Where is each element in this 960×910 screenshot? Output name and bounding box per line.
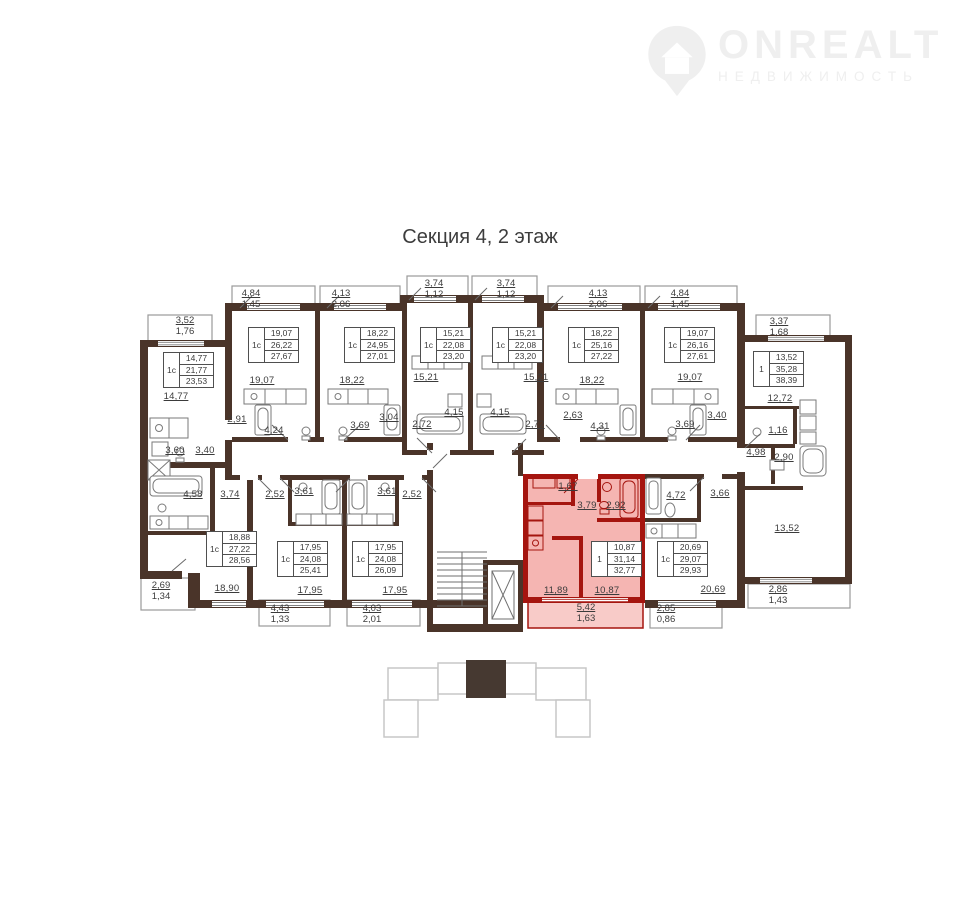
- elevator: [488, 566, 518, 624]
- floor-plan: [0, 0, 960, 910]
- page: { "title": "Секция 4, 2 этаж", "logo": {…: [0, 0, 960, 910]
- staircase: [437, 552, 487, 606]
- keyplan: [384, 660, 590, 737]
- highlighted-apartment: [523, 474, 645, 628]
